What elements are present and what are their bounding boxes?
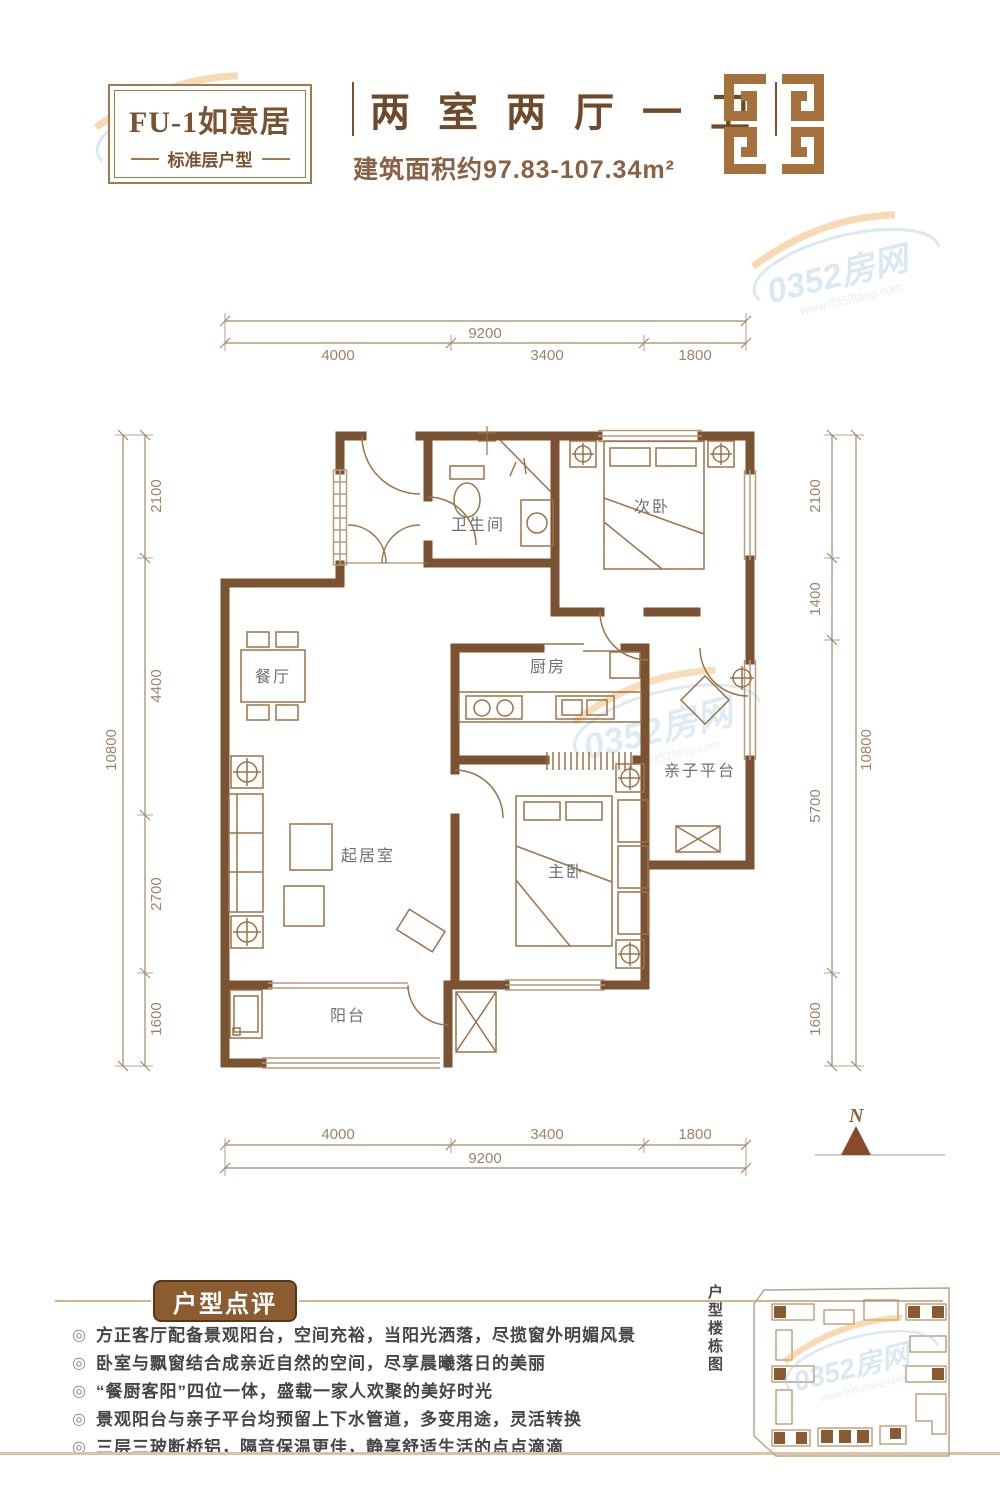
master-door-arc [455, 770, 503, 818]
hall-double-door-arcs [348, 525, 420, 563]
dim-right-3: 5700 [807, 789, 824, 822]
dim-top-3: 1800 [678, 347, 711, 364]
bullet-text: 三层三玻断桥铝，隔音保温更佳，静享舒适生活的点点滴滴 [96, 1438, 564, 1458]
list-item: ◎ 景观阳台与亲子平台均预留上下水管道，多变用途，灵活转换 [72, 1410, 732, 1430]
ac-platform-icon [676, 826, 720, 852]
sofa-icon [229, 794, 445, 952]
room-label-second-bedroom: 次卧 [634, 498, 670, 516]
floorplan-page: 0352房网 www.0352fang.com FU-1如意居 标准层户型 两 … [0, 0, 1000, 1500]
plan-type: 标准层户型 [168, 146, 253, 171]
plan-code-box: FU-1如意居 标准层户型 [108, 84, 312, 184]
room-label-master-bedroom: 主卧 [548, 863, 584, 881]
plan-type-row: 标准层户型 [131, 146, 290, 171]
dim-left-total: 10800 [103, 729, 120, 771]
plan-title-row: 两 室 两 厅 一 卫 [352, 80, 777, 138]
bullet-text: 方正客厅配备景观阳台，空间充裕，当阳光洒落，尽揽窗外明媚风景 [96, 1326, 636, 1346]
list-item: ◎ 方正客厅配备景观阳台，空间充裕，当阳光洒落，尽揽窗外明媚风景 [72, 1326, 732, 1346]
toilet-icon [450, 466, 484, 517]
bullet-icon: ◎ [72, 1410, 86, 1430]
list-item: ◎ 卧室与飘窗结合成亲近自然的空间，尽享晨曦落日的美丽 [72, 1354, 732, 1374]
plan-title: 两 室 两 厅 一 卫 [370, 80, 759, 138]
crosshair-icon [231, 756, 263, 948]
room-label-bathroom: 卫生间 [451, 516, 505, 534]
bullet-text: “餐厨客阳”四位一体，盛载一家人欢聚的美好时光 [96, 1382, 493, 1402]
bullet-icon: ◎ [72, 1438, 86, 1458]
washer-icon [230, 990, 262, 1038]
compass-letter: N [848, 1105, 865, 1127]
dim-bottom-2: 3400 [530, 1126, 563, 1143]
compass: N [815, 1105, 945, 1155]
room-label-kitchen: 厨房 [530, 658, 566, 676]
shaft-icon [456, 992, 496, 1052]
room-label-dining: 餐厅 [255, 668, 291, 686]
dim-left-3: 2700 [148, 877, 165, 910]
dim-left-1: 2100 [148, 479, 165, 512]
brand-logo [722, 72, 826, 181]
dim-bottom-total: 9200 [468, 1150, 501, 1167]
plan-code-box-inner: FU-1如意居 标准层户型 [114, 90, 306, 178]
room-label-balcony: 阳台 [330, 1007, 366, 1025]
balcony-door-arc [408, 985, 448, 1025]
radiator-icon [547, 752, 631, 770]
room-label-platform: 亲子平台 [664, 762, 736, 780]
bullet-icon: ◎ [72, 1354, 86, 1374]
compass-needle [841, 1126, 871, 1155]
dim-top-2: 3400 [530, 347, 563, 364]
comments-list: ◎ 方正客厅配备景观阳台，空间充裕，当阳光洒落，尽揽窗外明媚风景 ◎ 卧室与飘窗… [72, 1326, 732, 1466]
dim-right-4: 1600 [807, 1002, 824, 1035]
logo-pattern [729, 79, 819, 169]
heading-line-left [55, 1300, 151, 1302]
plan-area: 建筑面积约97.83-107.34m² [353, 150, 675, 186]
vent-symbol [478, 426, 496, 455]
bullet-text: 景观阳台与亲子平台均预留上下水管道，多变用途，灵活转换 [96, 1410, 582, 1430]
list-item: ◎ “餐厨客阳”四位一体，盛载一家人欢聚的美好时光 [72, 1382, 732, 1402]
bullet-text: 卧室与飘窗结合成亲近自然的空间，尽享晨曦落日的美丽 [96, 1354, 546, 1374]
crosshair-icon [570, 441, 734, 467]
bullet-icon: ◎ [72, 1326, 86, 1346]
entry-door-arc [362, 436, 420, 494]
dim-right-total: 10800 [858, 729, 875, 771]
dash-right [262, 158, 290, 160]
dim-top-1: 4000 [321, 347, 354, 364]
list-item: ◎ 三层三玻断桥铝，隔音保温更佳，静享舒适生活的点点滴滴 [72, 1438, 732, 1458]
watermark: 0352房网 www.0352fang.com [777, 1307, 945, 1411]
floorplan-drawing: 0352房网 www.0352fang.com [80, 280, 960, 1200]
dash-left [131, 158, 159, 160]
dim-bottom-3: 1800 [678, 1126, 711, 1143]
sink-icon [521, 500, 553, 546]
crosshair-icon [616, 764, 644, 968]
title-bar-left [352, 82, 354, 136]
room-label-living: 起居室 [341, 847, 395, 865]
dim-left-2: 4400 [148, 669, 165, 702]
shower-icon [500, 440, 551, 492]
dim-left-4: 1600 [148, 1002, 165, 1035]
bullet-icon: ◎ [72, 1382, 86, 1402]
dim-right-1: 2100 [807, 479, 824, 512]
comments-heading: 户型点评 [153, 1280, 297, 1322]
dim-bottom-1: 4000 [321, 1126, 354, 1143]
plan-code: FU-1如意居 [129, 97, 291, 141]
sitemap-label: 户型楼栋图 [704, 1284, 725, 1374]
dim-right-2: 1400 [807, 582, 824, 615]
sitemap-drawing: 0352房网 www.0352fang.com [724, 1278, 980, 1478]
dim-top-total: 9200 [468, 325, 501, 342]
